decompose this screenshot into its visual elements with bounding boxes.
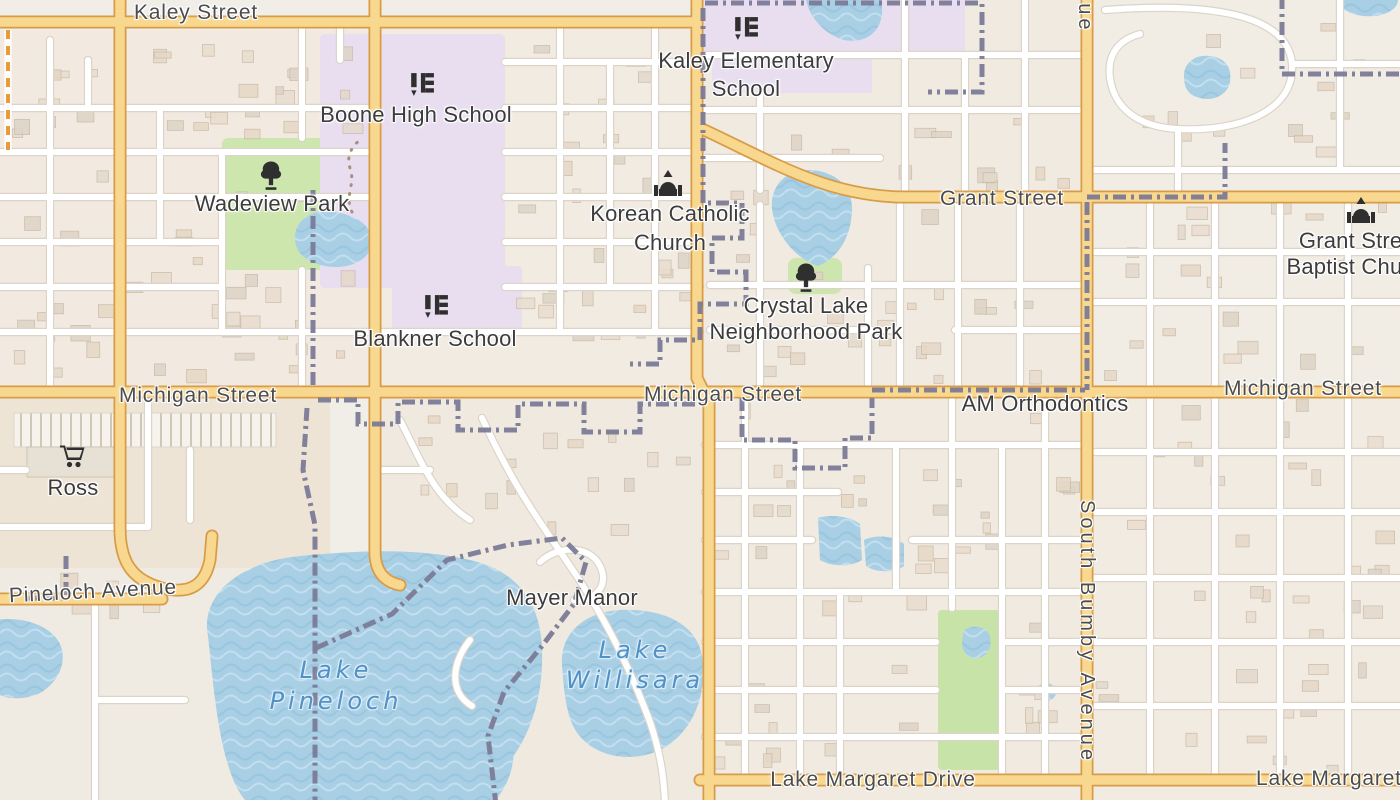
cart-icon [59, 446, 85, 469]
place-label-am-orthodontics: AM Orthodontics [962, 391, 1129, 417]
school-icon [423, 295, 449, 319]
road-label-michigan-street-east: Michigan Street [1224, 377, 1382, 401]
church-icon [1345, 197, 1377, 225]
tree-icon [794, 264, 818, 293]
road-label-bumby-avenue-north: Avenue [1073, 0, 1096, 33]
place-label-blankner-school: Blankner School [353, 326, 516, 352]
place-label-grant-baptist-line2: Baptist Church [1286, 254, 1400, 280]
water-label-lake-pineloch-line2: Pineloch [270, 687, 403, 715]
church-icon [652, 170, 684, 198]
road-label-grant-street: Grant Street [940, 187, 1064, 211]
school-icon [733, 17, 759, 41]
road-label-michigan-street-center: Michigan Street [644, 383, 802, 407]
place-label-crystal-lake-line1: Crystal Lake [744, 293, 869, 319]
place-label-boone-high-school: Boone High School [320, 102, 512, 128]
road-label-south-bumby-avenue: South Bumby Avenue [1075, 500, 1098, 764]
road-label-kaley-street: Kaley Street [134, 1, 258, 25]
place-label-korean-catholic-line1: Korean Catholic [590, 201, 750, 227]
place-label-korean-catholic-line2: Church [634, 230, 706, 256]
road-label-michigan-street-west: Michigan Street [119, 384, 277, 408]
school-icon [409, 73, 435, 97]
place-label-grant-baptist-line1: Grant Street [1299, 228, 1400, 254]
water-label-lake-willisara-line2: Willisara [566, 666, 704, 694]
road-label-lake-margaret-drive: Lake Margaret Drive [770, 768, 975, 792]
road-label-lake-margaret-drive-east: Lake Margaret Drive [1256, 767, 1400, 791]
place-label-mayer-manor: Mayer Manor [506, 585, 638, 611]
map-canvas[interactable]: Kaley Street Grant Street Michigan Stree… [0, 0, 1400, 800]
tree-icon [259, 162, 283, 191]
place-label-crystal-lake-line2: Neighborhood Park [710, 319, 903, 345]
place-label-ross: Ross [48, 475, 99, 501]
place-label-kaley-elementary-line2: School [712, 76, 780, 102]
water-label-lake-pineloch-line1: Lake [300, 656, 373, 684]
place-label-wadeview-park: Wadeview Park [195, 191, 350, 217]
place-label-kaley-elementary-line1: Kaley Elementary [658, 48, 834, 74]
water-label-lake-willisara-line1: Lake [599, 636, 672, 664]
